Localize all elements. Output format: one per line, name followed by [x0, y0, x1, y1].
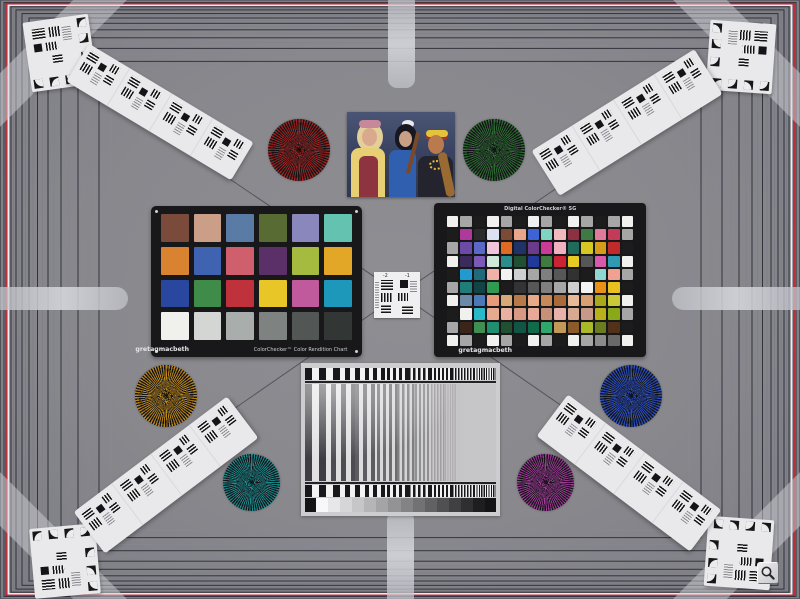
color-patch — [581, 308, 592, 319]
color-patch — [595, 335, 606, 346]
color-patch — [487, 216, 498, 227]
color-patch — [528, 216, 539, 227]
sweep-band — [452, 485, 474, 497]
color-patch — [595, 216, 606, 227]
color-patch — [554, 256, 565, 267]
color-patch — [292, 312, 320, 340]
sweep-band — [305, 485, 335, 497]
sweep-band — [408, 485, 430, 497]
color-patch — [554, 269, 565, 280]
color-patch — [447, 335, 458, 346]
color-patch — [474, 322, 485, 333]
color-patch — [608, 335, 619, 346]
green-siemens-star — [463, 119, 525, 181]
color-patch — [554, 229, 565, 240]
color-patch — [581, 242, 592, 253]
color-patch — [487, 269, 498, 280]
color-patch — [595, 322, 606, 333]
bottom-center-marker — [387, 511, 414, 599]
color-patch — [528, 295, 539, 306]
color-patch — [487, 229, 498, 240]
color-patch — [501, 322, 512, 333]
gray-step — [449, 498, 461, 512]
color-patch — [622, 335, 633, 346]
color-patch — [460, 308, 471, 319]
color-patch — [292, 214, 320, 242]
color-patch — [581, 229, 592, 240]
gray-step — [376, 498, 388, 512]
color-patch — [581, 335, 592, 346]
color-patch — [595, 295, 606, 306]
flower-crown — [359, 120, 381, 128]
color-patch — [487, 295, 498, 306]
color-patch — [194, 280, 222, 308]
color-patch — [568, 335, 579, 346]
color-patch — [528, 242, 539, 253]
right-center-marker — [672, 287, 800, 310]
color-patch — [447, 216, 458, 227]
color-patch — [460, 322, 471, 333]
color-patch — [608, 308, 619, 319]
color-patch — [541, 269, 552, 280]
sg-title: Digital ColorChecker® SG — [504, 207, 576, 212]
color-patch — [487, 308, 498, 319]
color-patch — [554, 282, 565, 293]
color-patch — [460, 335, 471, 346]
usaf-label-left: -2 — [383, 273, 388, 278]
gray-step — [437, 498, 449, 512]
color-patch — [608, 256, 619, 267]
sweep-band — [335, 368, 365, 380]
sweep-band — [430, 485, 452, 497]
color-patch — [447, 229, 458, 240]
color-patch — [487, 282, 498, 293]
color-patch — [514, 295, 525, 306]
color-patch — [528, 335, 539, 346]
color-patch — [161, 247, 189, 275]
sweep-band — [474, 485, 496, 497]
color-patch — [514, 335, 525, 346]
color-patch — [528, 282, 539, 293]
color-patch — [487, 256, 498, 267]
color-patch — [541, 242, 552, 253]
top-center-marker — [388, 0, 415, 88]
color-patch — [595, 308, 606, 319]
gray-step-wedge — [305, 498, 496, 512]
magnifier-icon — [760, 565, 776, 581]
color-patch — [324, 280, 352, 308]
gray-step — [340, 498, 352, 512]
colorchecker-brand: gretagmacbeth — [135, 347, 189, 353]
color-patch — [528, 308, 539, 319]
color-patch — [474, 308, 485, 319]
color-patch — [541, 216, 552, 227]
color-patch — [501, 282, 512, 293]
color-patch — [460, 269, 471, 280]
color-patch — [622, 216, 633, 227]
color-patch — [514, 322, 525, 333]
red-siemens-star — [268, 119, 330, 181]
color-patch — [460, 282, 471, 293]
rule-line — [305, 381, 496, 383]
color-patch — [581, 282, 592, 293]
color-patch — [474, 295, 485, 306]
color-patch — [554, 242, 565, 253]
color-patch — [541, 308, 552, 319]
color-patch — [622, 229, 633, 240]
teal-siemens-star — [223, 454, 280, 511]
color-patch — [487, 322, 498, 333]
color-patch — [581, 322, 592, 333]
color-patch — [568, 242, 579, 253]
gray-step — [352, 498, 364, 512]
sweep-band — [474, 368, 496, 380]
color-patch — [447, 242, 458, 253]
color-patch — [161, 312, 189, 340]
color-patch — [460, 256, 471, 267]
color-patch — [608, 229, 619, 240]
color-patch — [568, 295, 579, 306]
color-patch — [501, 256, 512, 267]
center-usaf-target: -2 -1 — [374, 272, 420, 318]
color-patch — [554, 335, 565, 346]
sweep-band — [365, 485, 387, 497]
sg-grid — [447, 216, 633, 346]
color-patch — [194, 247, 222, 275]
color-patch — [474, 216, 485, 227]
color-patch — [474, 282, 485, 293]
color-patch — [608, 216, 619, 227]
color-patch — [622, 295, 633, 306]
color-patch — [447, 256, 458, 267]
color-patch — [554, 322, 565, 333]
color-patch — [161, 280, 189, 308]
gray-step — [461, 498, 473, 512]
color-patch — [460, 242, 471, 253]
magenta-siemens-star — [517, 454, 574, 511]
corner-resolution-card-tr — [706, 20, 777, 94]
gray-step — [473, 498, 485, 512]
color-patch — [487, 335, 498, 346]
color-patch — [622, 242, 633, 253]
sweep-band — [365, 368, 387, 380]
color-patch — [259, 214, 287, 242]
color-patch — [514, 269, 525, 280]
sg-brand: gretagmacbeth — [458, 348, 512, 354]
color-patch — [622, 256, 633, 267]
color-patch — [568, 229, 579, 240]
color-patch — [595, 269, 606, 280]
color-patch — [541, 295, 552, 306]
color-patch — [622, 322, 633, 333]
color-patch — [608, 282, 619, 293]
frequency-sweep-card — [301, 363, 500, 516]
color-patch — [259, 280, 287, 308]
color-patch — [568, 216, 579, 227]
color-patch — [528, 256, 539, 267]
musicians-photo-print — [347, 112, 455, 197]
color-patch — [528, 269, 539, 280]
color-patch — [541, 322, 552, 333]
color-patch — [581, 216, 592, 227]
color-patch — [447, 322, 458, 333]
sweep-band — [335, 485, 365, 497]
color-patch — [161, 214, 189, 242]
color-patch — [608, 269, 619, 280]
chirp-field — [305, 384, 496, 481]
sweep-band — [387, 368, 409, 380]
color-patch — [568, 308, 579, 319]
amber-siemens-star — [135, 365, 197, 427]
color-patch — [608, 242, 619, 253]
color-patch — [608, 322, 619, 333]
color-patch — [595, 229, 606, 240]
bar-sweep-top — [305, 368, 496, 380]
rule-line — [305, 482, 496, 484]
blue-siemens-star — [600, 365, 662, 427]
color-patch — [501, 269, 512, 280]
color-patch — [568, 269, 579, 280]
color-patch — [554, 308, 565, 319]
gray-step — [413, 498, 425, 512]
colorchecker-grid — [161, 214, 352, 340]
color-patch — [447, 269, 458, 280]
wedge-end-black — [485, 498, 496, 512]
color-patch — [474, 256, 485, 267]
color-patch — [226, 247, 254, 275]
color-patch — [541, 229, 552, 240]
color-patch — [581, 295, 592, 306]
color-patch — [226, 214, 254, 242]
gray-step — [401, 498, 413, 512]
color-patch — [568, 282, 579, 293]
color-patch — [501, 295, 512, 306]
color-patch — [501, 242, 512, 253]
gray-step — [316, 498, 328, 512]
gray-step — [328, 498, 340, 512]
color-patch — [259, 247, 287, 275]
color-patch — [514, 216, 525, 227]
color-patch — [487, 242, 498, 253]
gray-step — [364, 498, 376, 512]
color-patch — [447, 295, 458, 306]
magnifier-button[interactable] — [757, 562, 779, 584]
color-patch — [622, 282, 633, 293]
color-patch — [226, 280, 254, 308]
colorchecker-title: ColorChecker™ Color Rendition Chart — [254, 348, 348, 353]
color-patch — [514, 256, 525, 267]
color-patch — [447, 282, 458, 293]
color-patch — [292, 247, 320, 275]
color-patch — [541, 256, 552, 267]
color-patch — [474, 269, 485, 280]
color-patch — [514, 282, 525, 293]
bar-targets — [706, 20, 777, 94]
color-patch — [622, 308, 633, 319]
color-patch — [194, 312, 222, 340]
gray-step — [388, 498, 400, 512]
colorchecker-24-panel: gretagmacbeth ColorChecker™ Color Rendit… — [151, 206, 362, 357]
middle-face — [399, 131, 412, 147]
color-patch — [474, 229, 485, 240]
color-patch — [608, 295, 619, 306]
color-patch — [541, 282, 552, 293]
color-patch — [226, 312, 254, 340]
color-patch — [581, 256, 592, 267]
color-patch — [460, 216, 471, 227]
color-patch — [324, 247, 352, 275]
bar-sweep-bottom — [305, 485, 496, 497]
studio-test-chart-photo: gretagmacbeth ColorChecker™ Color Rendit… — [0, 0, 800, 599]
color-patch — [501, 308, 512, 319]
color-patch — [324, 214, 352, 242]
color-patch — [259, 312, 287, 340]
color-patch — [460, 295, 471, 306]
color-patch — [514, 229, 525, 240]
right-face — [428, 135, 444, 154]
color-patch — [460, 229, 471, 240]
color-patch — [595, 242, 606, 253]
sweep-band — [430, 368, 452, 380]
color-patch — [447, 308, 458, 319]
left-face — [362, 128, 377, 146]
color-patch — [514, 242, 525, 253]
color-patch — [292, 280, 320, 308]
color-patch — [581, 269, 592, 280]
color-patch — [568, 322, 579, 333]
left-center-marker — [0, 287, 128, 310]
sweep-band — [387, 485, 409, 497]
sweep-band — [305, 368, 335, 380]
color-patch — [324, 312, 352, 340]
color-patch — [622, 269, 633, 280]
colorchecker-sg-panel: Digital ColorChecker® SG gretagmacbeth — [434, 203, 646, 357]
color-patch — [595, 256, 606, 267]
color-patch — [474, 242, 485, 253]
sweep-band — [452, 368, 474, 380]
color-patch — [595, 282, 606, 293]
color-patch — [501, 335, 512, 346]
color-patch — [528, 322, 539, 333]
color-patch — [514, 308, 525, 319]
color-patch — [554, 216, 565, 227]
color-patch — [474, 335, 485, 346]
color-patch — [528, 229, 539, 240]
color-patch — [568, 256, 579, 267]
color-patch — [501, 216, 512, 227]
sweep-band — [408, 368, 430, 380]
left-red-vest — [359, 156, 378, 197]
color-patch — [501, 229, 512, 240]
wedge-end-black — [305, 498, 316, 512]
color-patch — [554, 295, 565, 306]
color-patch — [194, 214, 222, 242]
usaf-label-right: -1 — [405, 273, 410, 278]
color-patch — [541, 335, 552, 346]
gray-step — [425, 498, 437, 512]
